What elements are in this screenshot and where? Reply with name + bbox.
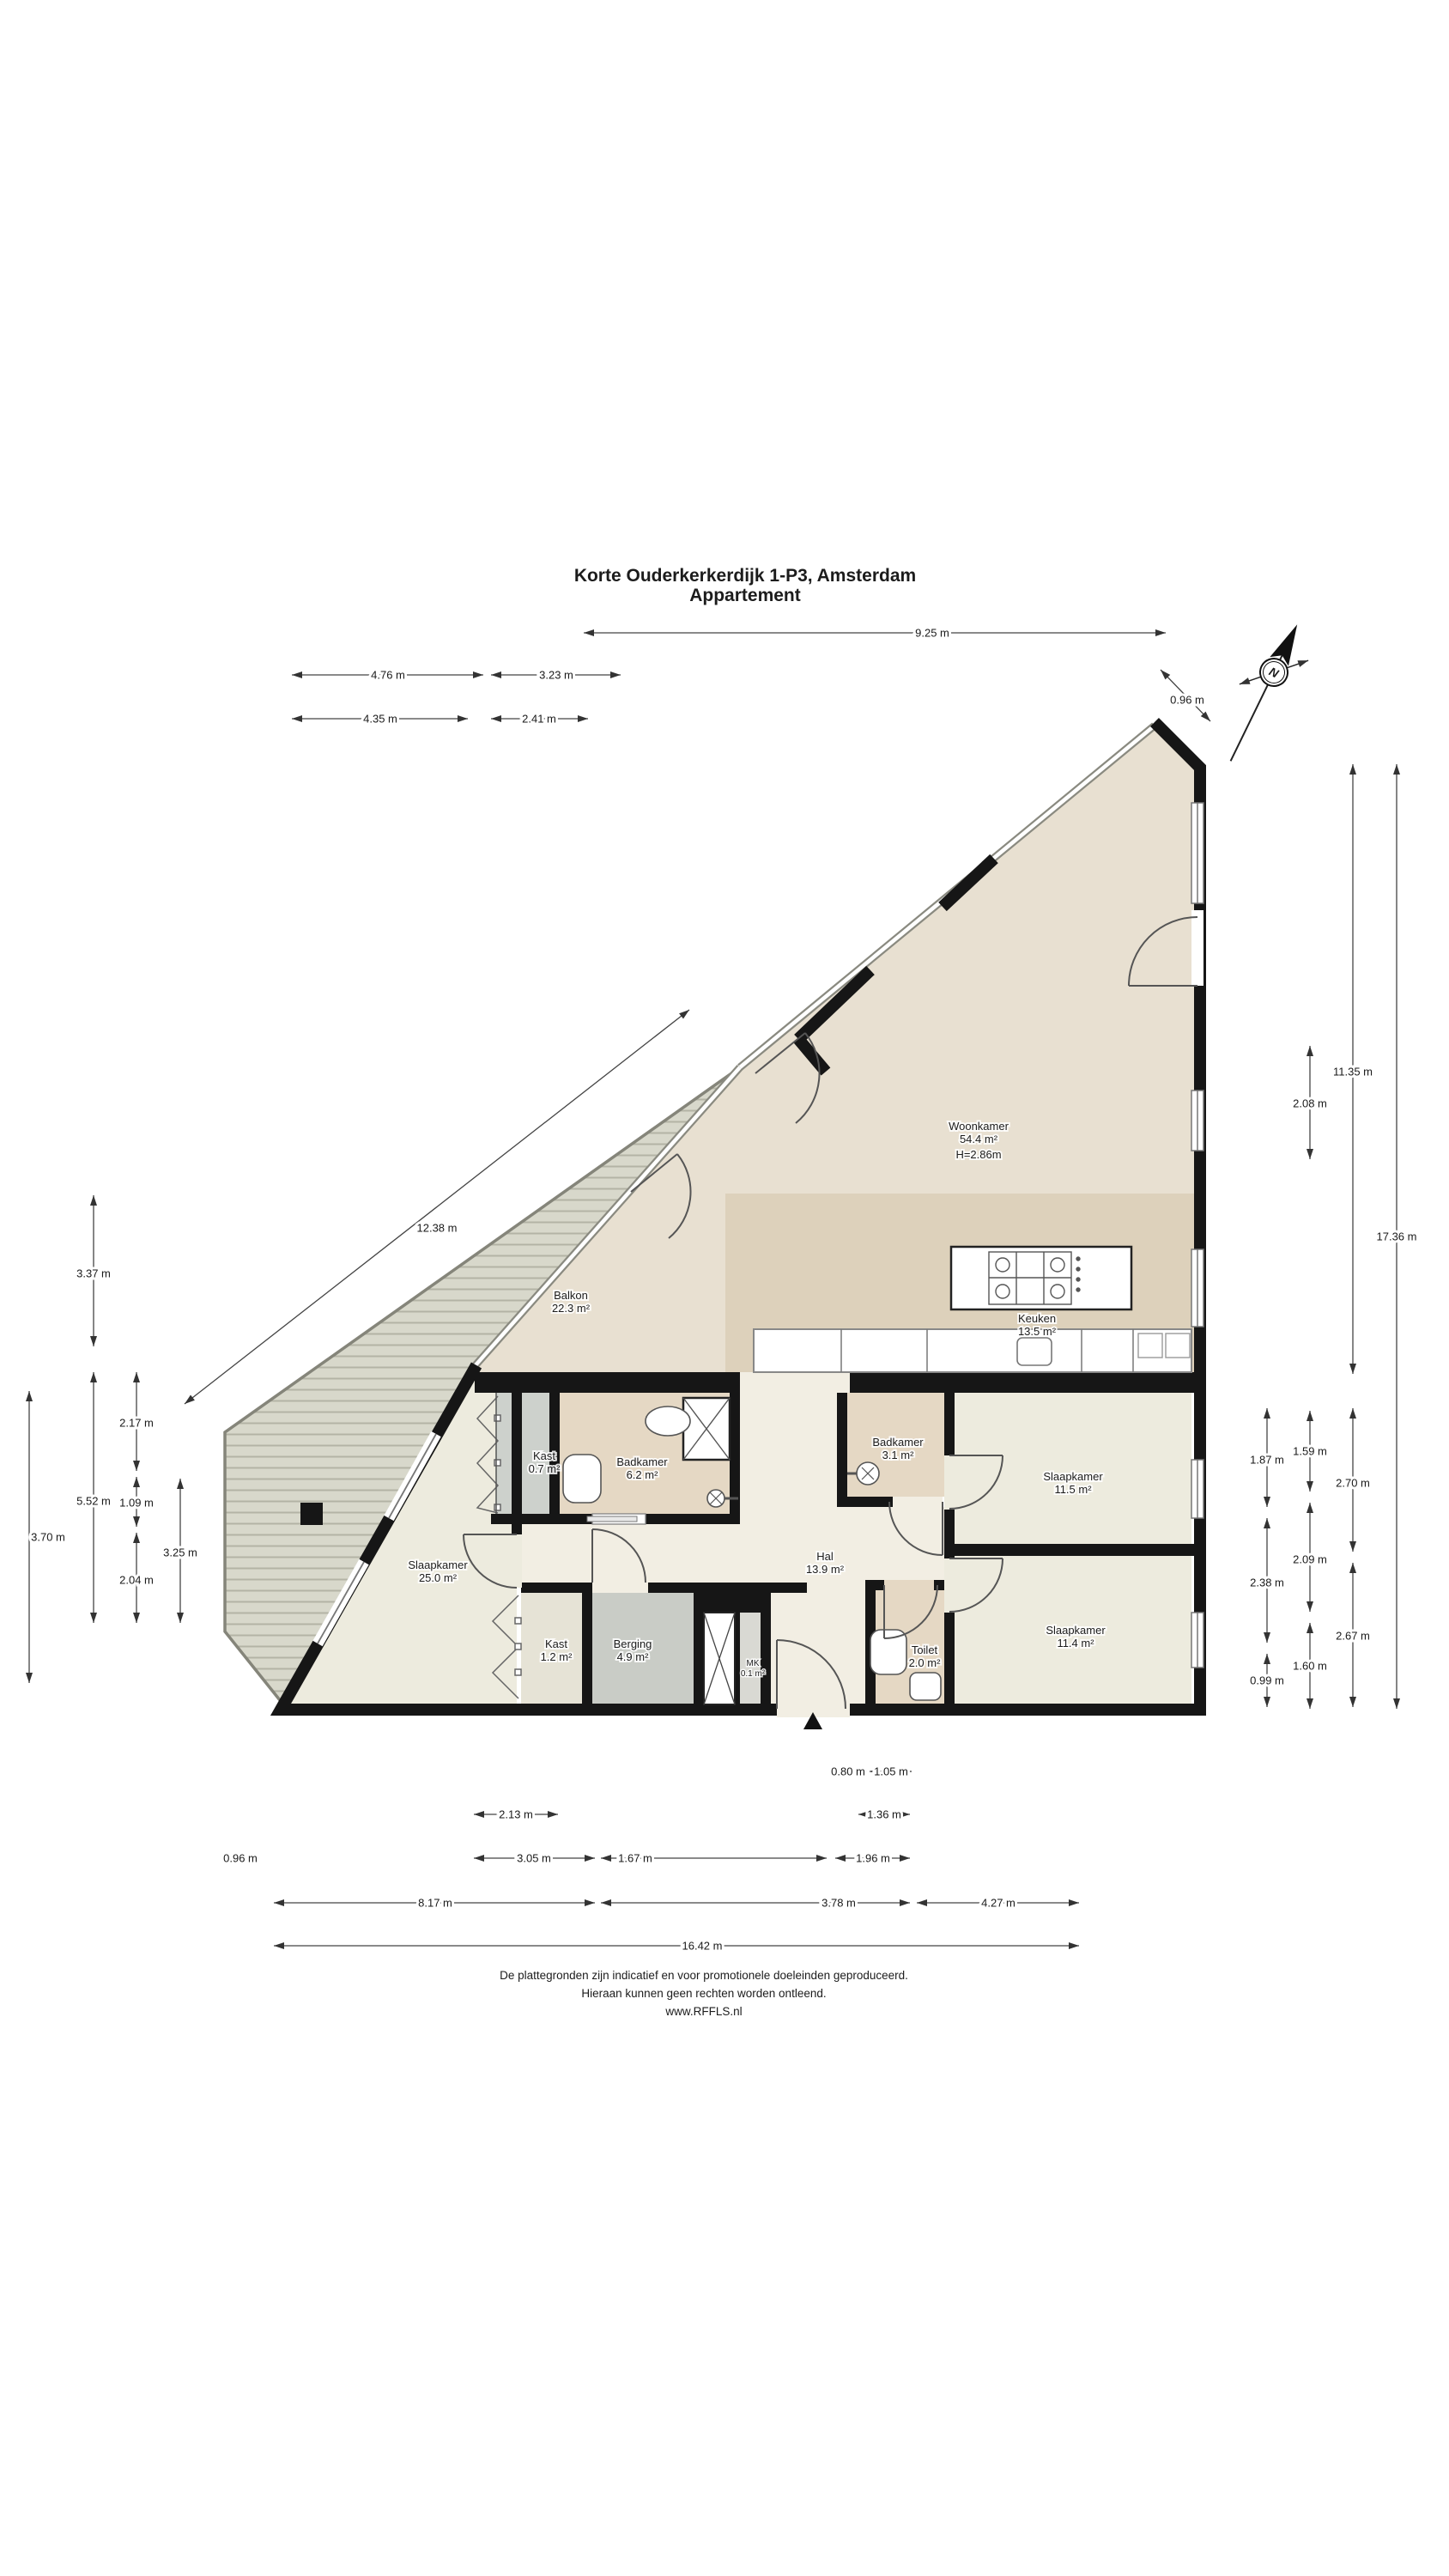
dimension-label: 2.09 m (1293, 1553, 1327, 1566)
dimension-label: 5.52 m (76, 1495, 111, 1508)
dimension-label: 2.70 m (1336, 1477, 1370, 1490)
door-gap-toilet (884, 1580, 934, 1590)
dimension-label: 3.78 m (822, 1897, 856, 1910)
plan-subtitle: Appartement (689, 586, 801, 605)
dimension-label: 16.42 m (682, 1940, 723, 1953)
plan-title: Korte Ouderkerkerdijk 1-P3, Amsterdam (574, 566, 916, 586)
toilet-badkamer62 (563, 1455, 601, 1503)
dimension-label: 2.38 m (1250, 1577, 1284, 1589)
shower-badkamer62 (683, 1398, 730, 1460)
dimension-label: 2.13 m (499, 1808, 533, 1821)
window-right-3 (1191, 1249, 1203, 1327)
room-label: Toilet2.0 m² (909, 1643, 942, 1669)
dimension-label: 3.25 m (163, 1546, 197, 1559)
dimension-label: 2.17 m (119, 1417, 154, 1430)
room-label: Keuken13.5 m² (1018, 1312, 1057, 1338)
floor-hal-opening (740, 1372, 850, 1393)
sink-wc (910, 1673, 941, 1700)
dimension-label: 0.80 m (831, 1765, 865, 1778)
dimension-label: 1.87 m (1250, 1454, 1284, 1467)
kitchen-island (951, 1247, 1131, 1309)
window-right-1 (1191, 803, 1203, 903)
dimension-label: 4.76 m (371, 669, 405, 682)
footer-disclaimer-2: Hieraan kunnen geen rechten worden ontle… (581, 1987, 826, 2000)
dimension-label: 1.36 m (867, 1808, 901, 1821)
dimension-label: 12.38 m (417, 1222, 458, 1235)
sliding-door-badkamer62 (587, 1514, 646, 1524)
dimension-label: 4.27 m (981, 1897, 1016, 1910)
dimension-label: 1.05 m (874, 1765, 908, 1778)
balcony-door-opening (1191, 910, 1203, 986)
dimension-label: 1.96 m (856, 1852, 890, 1865)
dimension-label: 8.17 m (418, 1897, 452, 1910)
floorplan-page: N Woonkamer54.4 m²H=2.86mKeuken13.5 m²Ba… (0, 0, 1449, 2576)
dimension-label: 2.08 m (1293, 1097, 1327, 1110)
window-right-2 (1191, 1091, 1203, 1151)
dimension-label: 3.37 m (76, 1267, 111, 1280)
dimension-label: 3.23 m (539, 669, 573, 682)
dimension-label: 2.04 m (119, 1574, 154, 1587)
shaft-box (704, 1613, 735, 1704)
dimension-label: 4.35 m (363, 713, 397, 726)
door-gap-s114 (944, 1558, 955, 1613)
compass-rose: N (1208, 613, 1321, 772)
dimension-label: 3.70 m (31, 1531, 65, 1544)
door-gap-berging (592, 1583, 648, 1593)
floor-hal-stub (837, 1507, 944, 1580)
sink-badkamer62 (646, 1406, 690, 1436)
floorplan-svg: N Woonkamer54.4 m²H=2.86mKeuken13.5 m²Ba… (0, 0, 1449, 2576)
footer-website: www.RFFLS.nl (664, 2005, 742, 2018)
door-gap-badkamer31 (893, 1497, 943, 1507)
floor-slaapkamer-115 (955, 1393, 1191, 1544)
cooktop-icon (989, 1252, 1080, 1304)
dimension-label: 0.96 m (1170, 694, 1204, 707)
dimension-label: 1.09 m (119, 1497, 154, 1510)
kitchen-counter (754, 1329, 1191, 1372)
dimension-label: 11.35 m (1333, 1066, 1373, 1078)
door-gap-s115 (944, 1455, 955, 1510)
room-label: Balkon22.3 m² (552, 1289, 591, 1315)
window-right-5 (1191, 1613, 1203, 1668)
door-gap-s25 (512, 1534, 522, 1588)
dimension-label: 2.41 m (522, 713, 556, 726)
kitchen-sink (1017, 1338, 1052, 1365)
window-right-4 (1191, 1460, 1203, 1518)
dimension-label: 0.96 m (223, 1852, 258, 1865)
dimension-label: 1.67 m (618, 1852, 652, 1865)
dimension-label: 3.05 m (517, 1852, 551, 1865)
dimension-label: 17.36 m (1377, 1230, 1417, 1243)
footer-disclaimer-1: De plattegronden zijn indicatief en voor… (500, 1969, 908, 1982)
dimension-label: 2.67 m (1336, 1630, 1370, 1643)
room-label: Berging4.9 m² (614, 1637, 652, 1663)
dimension-label: 0.99 m (1250, 1674, 1284, 1687)
dimension-label: 9.25 m (915, 627, 949, 640)
dimension-label: 1.59 m (1293, 1445, 1327, 1458)
floor-hal-arm (522, 1524, 740, 1583)
dimension-label: 1.60 m (1293, 1660, 1327, 1673)
